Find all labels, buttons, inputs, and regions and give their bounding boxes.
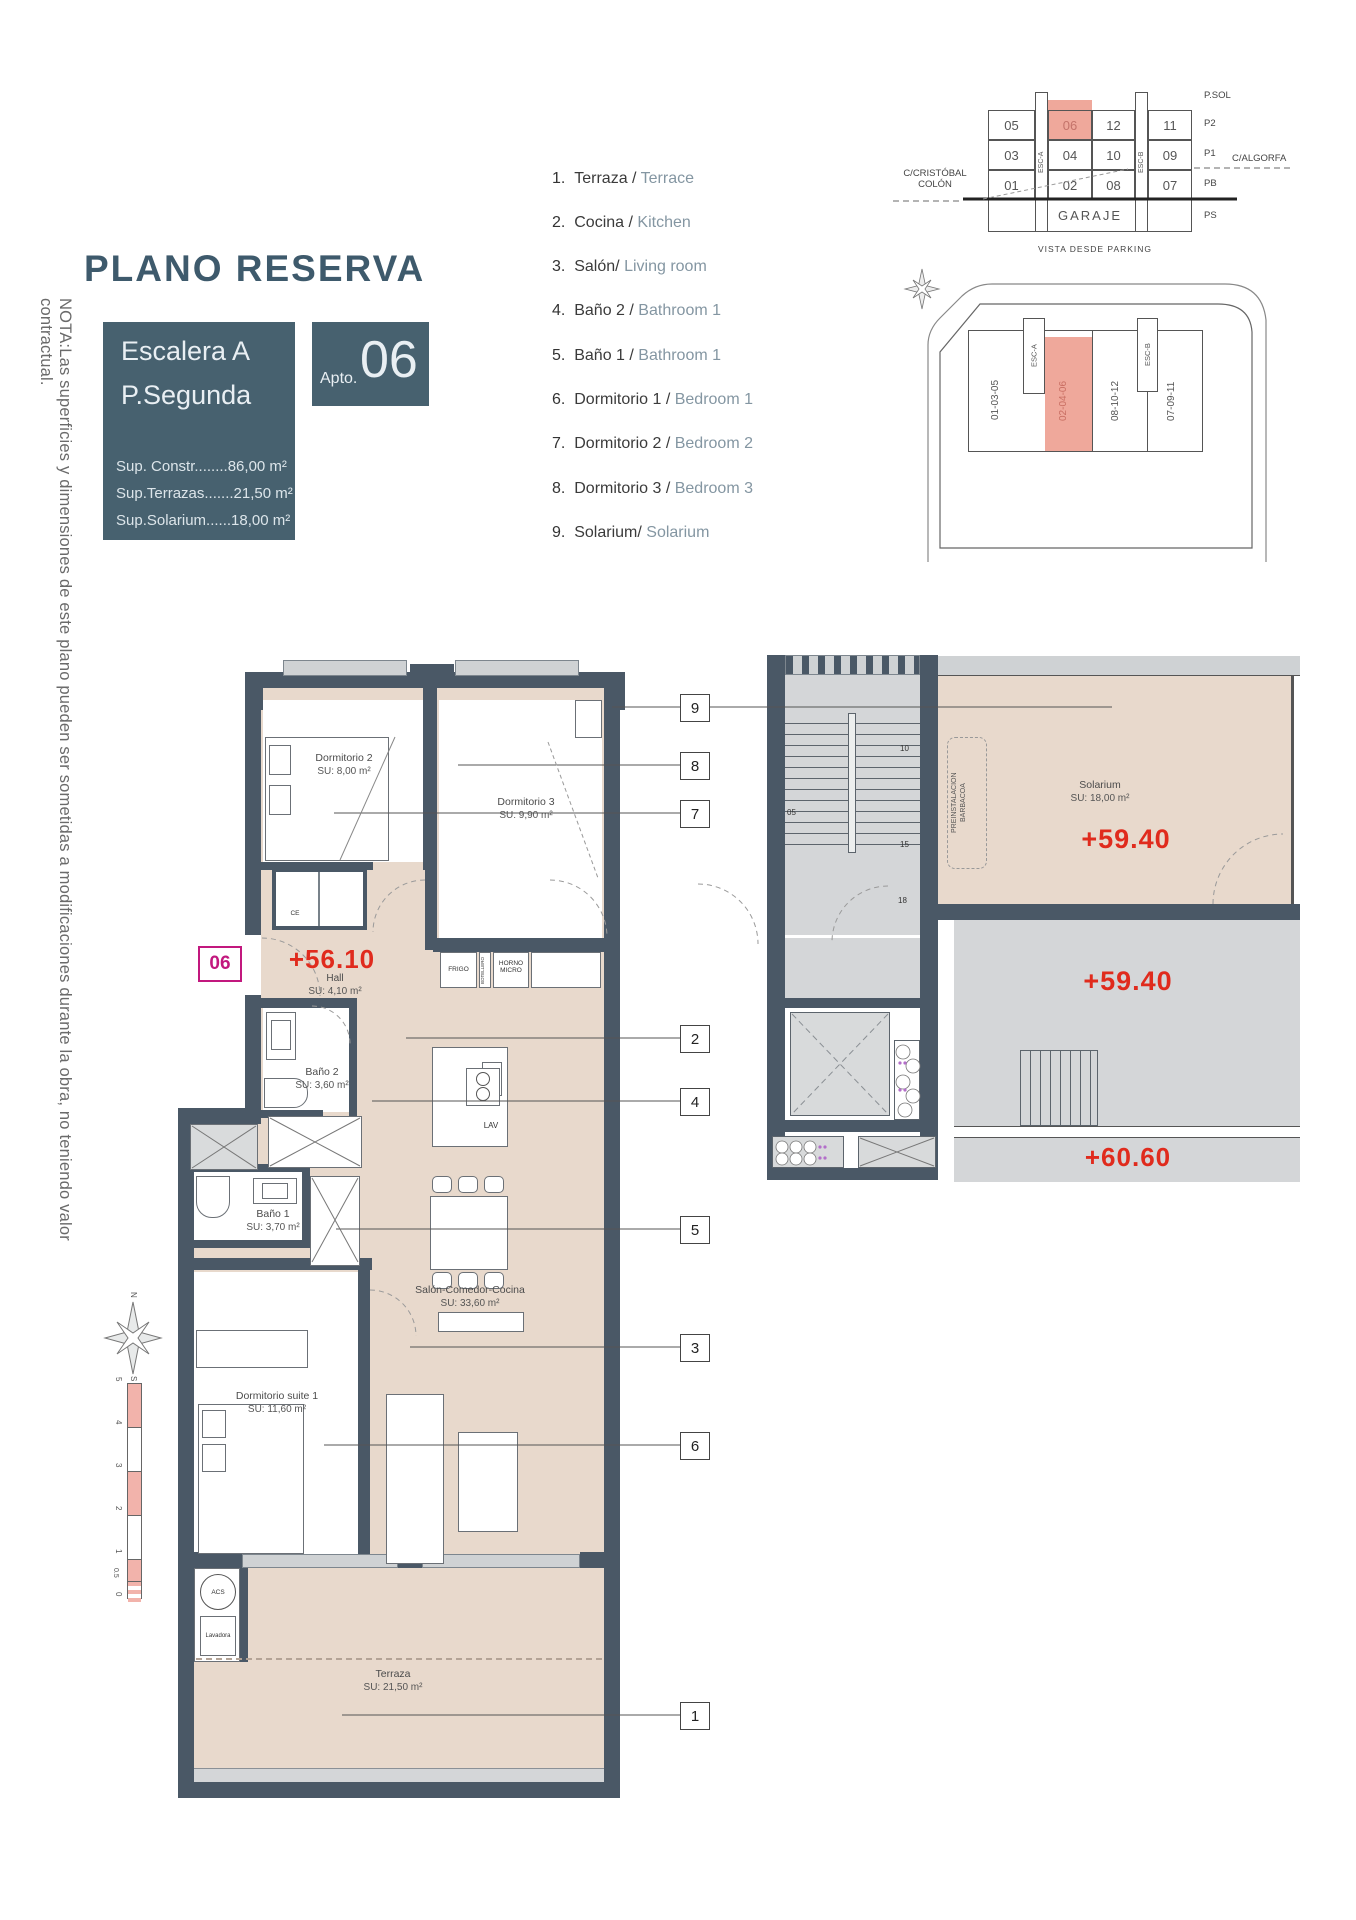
- level-stair-top: +60.60: [1078, 1142, 1178, 1173]
- room-area: SU: 3,60 m²: [262, 1079, 382, 1092]
- room-area: SU: 21,50 m²: [331, 1681, 455, 1694]
- legend-es: Cocina /: [574, 214, 633, 231]
- callout-1: 1: [680, 1702, 710, 1730]
- room-area: SU: 11,60 m²: [205, 1403, 349, 1416]
- legend-en: Bedroom 2: [675, 435, 753, 452]
- site-compass: [905, 269, 939, 309]
- callout-5: 5: [680, 1216, 710, 1244]
- service-dots: [818, 1061, 906, 1159]
- plan-sheet: PLANO RESERVA Escalera A P.Segunda Sup. …: [0, 0, 1356, 1920]
- room-area: SU: 9,90 m²: [464, 809, 588, 822]
- scale-label-0: 0: [114, 1592, 123, 1596]
- room-name: Baño 2: [262, 1066, 382, 1079]
- room-name: Dormitorio suite 1: [205, 1390, 349, 1403]
- legend-item: 4. Baño 2 / Bathroom 1: [552, 302, 721, 320]
- main-compass: [105, 1302, 161, 1374]
- step-number: 10: [900, 744, 909, 753]
- scale-label-5: 5: [114, 1377, 123, 1381]
- legend-en: Bathroom 1: [638, 347, 721, 364]
- room-name: Baño 1: [212, 1208, 334, 1221]
- legend-es: Salón/: [574, 258, 619, 275]
- level-hall: +56.10: [284, 944, 380, 975]
- legend-item: 8. Dormitorio 3 / Bedroom 3: [552, 480, 753, 498]
- room-name: Terraza: [331, 1668, 455, 1681]
- bottle-rack-label: BOTELLERO: [480, 953, 490, 987]
- legend-es: Dormitorio 3 /: [574, 480, 670, 497]
- scale-label-05: 0.5: [112, 1568, 119, 1578]
- room-name: Hall: [287, 972, 383, 985]
- label-bath2: Baño 2SU: 3,60 m²: [262, 1066, 382, 1092]
- label-dorm2: Dormitorio 2SU: 8,00 m²: [282, 752, 406, 778]
- callout-2: 2: [680, 1025, 710, 1053]
- legend-item: 6. Dormitorio 1 / Bedroom 1: [552, 391, 753, 409]
- room-area: SU: 33,60 m²: [388, 1297, 552, 1310]
- legend-num: 9.: [552, 524, 565, 541]
- legend-en: Bedroom 1: [675, 391, 753, 408]
- legend-en: Bedroom 3: [675, 480, 753, 497]
- legend-num: 2.: [552, 214, 565, 231]
- room-name: Salón-Comedor-Cocina: [388, 1284, 552, 1297]
- level-upper-terrace: +59.40: [1078, 966, 1178, 997]
- step-number: 18: [898, 896, 907, 905]
- room-name: Solarium: [1038, 779, 1162, 792]
- room-name: Dormitorio 3: [464, 796, 588, 809]
- legend-item: 7. Dormitorio 2 / Bedroom 2: [552, 435, 753, 453]
- legend-es: Dormitorio 2 /: [574, 435, 670, 452]
- scale-label-4: 4: [114, 1420, 123, 1424]
- legend-num: 5.: [552, 347, 565, 364]
- legend-item: 2. Cocina / Kitchen: [552, 214, 691, 232]
- unit-badge: 06: [198, 946, 242, 982]
- label-hall: HallSU: 4,10 m²: [287, 972, 383, 998]
- scale-label-1: 1: [114, 1549, 123, 1553]
- legend-num: 4.: [552, 302, 565, 319]
- scale-label-2: 2: [114, 1506, 123, 1510]
- compass-south-label: S: [129, 1376, 138, 1381]
- room-name: Dormitorio 2: [282, 752, 406, 765]
- legend-es: Terraza /: [574, 170, 636, 187]
- callout-8: 8: [680, 752, 710, 780]
- callout-7: 7: [680, 800, 710, 828]
- step-number: 05: [787, 808, 796, 817]
- legend-es: Baño 1 /: [574, 347, 634, 364]
- label-terraza: TerrazaSU: 21,50 m²: [331, 1668, 455, 1694]
- legend-num: 8.: [552, 480, 565, 497]
- callout-leaders: [324, 707, 1112, 1715]
- label-salon: Salón-Comedor-CocinaSU: 33,60 m²: [388, 1284, 552, 1310]
- lav-label: LAV: [478, 1122, 504, 1129]
- ce-label: CE: [285, 910, 305, 917]
- step-number: 15: [900, 840, 909, 849]
- callout-4: 4: [680, 1088, 710, 1116]
- door-arcs: [262, 834, 1283, 1336]
- legend-item: 9. Solarium/ Solarium: [552, 524, 709, 542]
- label-dorm3: Dormitorio 3SU: 9,90 m²: [464, 796, 588, 822]
- room-area: SU: 8,00 m²: [282, 765, 406, 778]
- legend-item: 5. Baño 1 / Bathroom 1: [552, 347, 721, 365]
- barbacoa-label: PREINSTALACIONBARBACOA: [950, 740, 984, 866]
- legend-en: Living room: [624, 258, 707, 275]
- legend-num: 1.: [552, 170, 565, 187]
- legend-en: Kitchen: [637, 214, 690, 231]
- compass-north-label: N: [129, 1292, 138, 1298]
- legend-num: 3.: [552, 258, 565, 275]
- disclaimer-note: NOTA:Las superficies y dimensiones de es…: [54, 298, 74, 1318]
- scale-label-3: 3: [114, 1463, 123, 1467]
- barbacoa-line1: PREINSTALACION: [951, 773, 958, 834]
- callout-6: 6: [680, 1432, 710, 1460]
- label-suite: Dormitorio suite 1SU: 11,60 m²: [205, 1390, 349, 1416]
- legend-num: 6.: [552, 391, 565, 408]
- legend-es: Dormitorio 1 /: [574, 391, 670, 408]
- label-bath1: Baño 1SU: 3,70 m²: [212, 1208, 334, 1234]
- page-title: PLANO RESERVA: [84, 248, 425, 290]
- legend-num: 7.: [552, 435, 565, 452]
- legend-item: 3. Salón/ Living room: [552, 258, 707, 276]
- level-solarium: +59.40: [1076, 824, 1176, 855]
- legend-en: Bathroom 1: [638, 302, 721, 319]
- room-area: SU: 4,10 m²: [287, 985, 383, 998]
- legend-en: Solarium: [646, 524, 709, 541]
- burner-circles: [477, 1073, 490, 1101]
- street-lines: [893, 168, 1290, 201]
- oven-micro-label: HORNO MICRO: [494, 960, 528, 974]
- lift-x: [792, 1014, 888, 1114]
- label-solarium: SolariumSU: 18,00 m²: [1038, 779, 1162, 805]
- room-area: SU: 18,00 m²: [1038, 792, 1162, 805]
- legend-en: Terrace: [641, 170, 694, 187]
- legend-es: Baño 2 /: [574, 302, 634, 319]
- callout-3: 3: [680, 1334, 710, 1362]
- callout-9: 9: [680, 694, 710, 722]
- legend-es: Solarium/: [574, 524, 642, 541]
- site-plot-outline: [928, 284, 1266, 562]
- barbacoa-line2: BARBACOA: [960, 784, 967, 823]
- room-area: SU: 3,70 m²: [212, 1221, 334, 1234]
- fridge-label: FRIGO: [441, 966, 476, 973]
- legend-item: 1. Terraza / Terrace: [552, 170, 694, 188]
